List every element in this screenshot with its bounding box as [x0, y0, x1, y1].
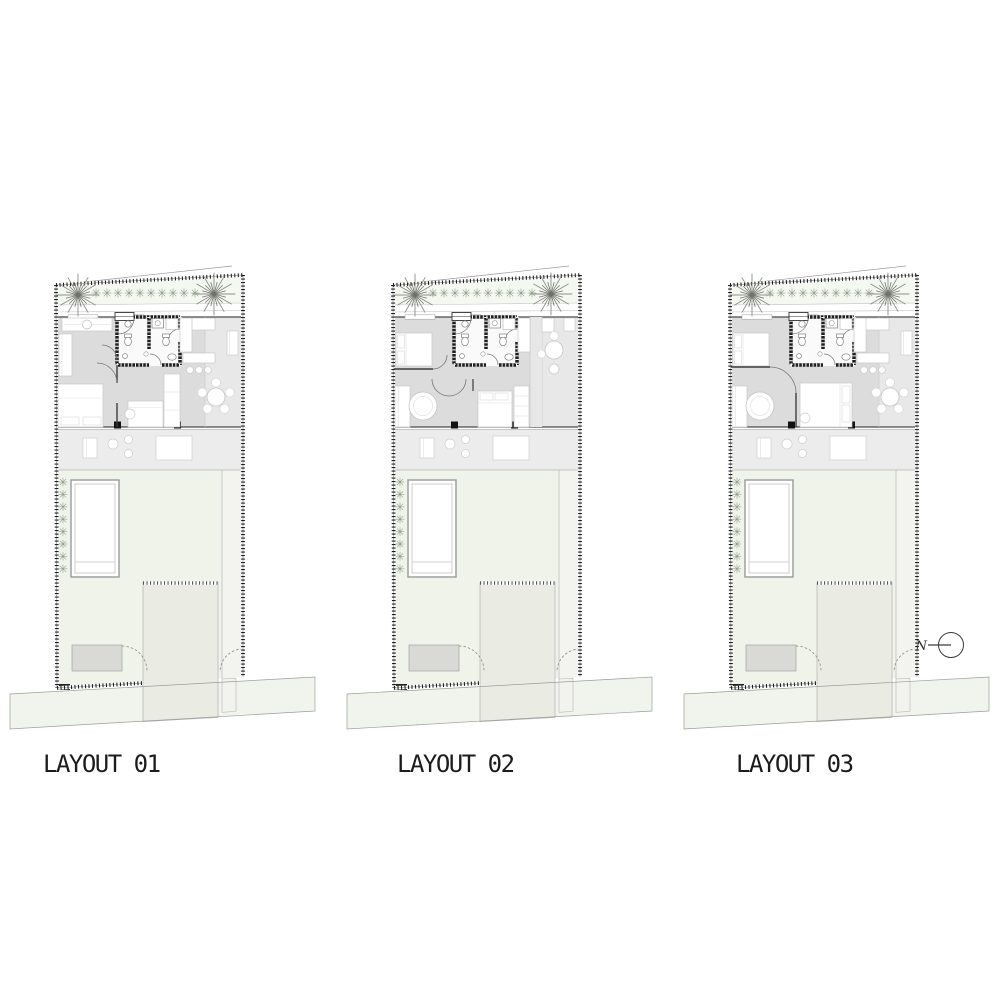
layout-01-label: LAYOUT 01: [43, 750, 160, 778]
floor-plan-layout-03-base: [684, 266, 989, 729]
floor-plan-layout-01-base: [10, 266, 315, 729]
layout-03-label: LAYOUT 03: [736, 750, 853, 778]
layout-02-label: LAYOUT 02: [397, 750, 514, 778]
floor-plans-drawing: N: [0, 0, 1000, 1000]
north-letter: N: [915, 639, 928, 654]
floor-plan-layout-02-base: [347, 266, 652, 729]
architectural-layout-sheet: N LAYOUT 01 LAYOUT 02 LAYOUT 03: [0, 0, 1000, 1000]
north-indicator-icon: N: [915, 633, 964, 658]
